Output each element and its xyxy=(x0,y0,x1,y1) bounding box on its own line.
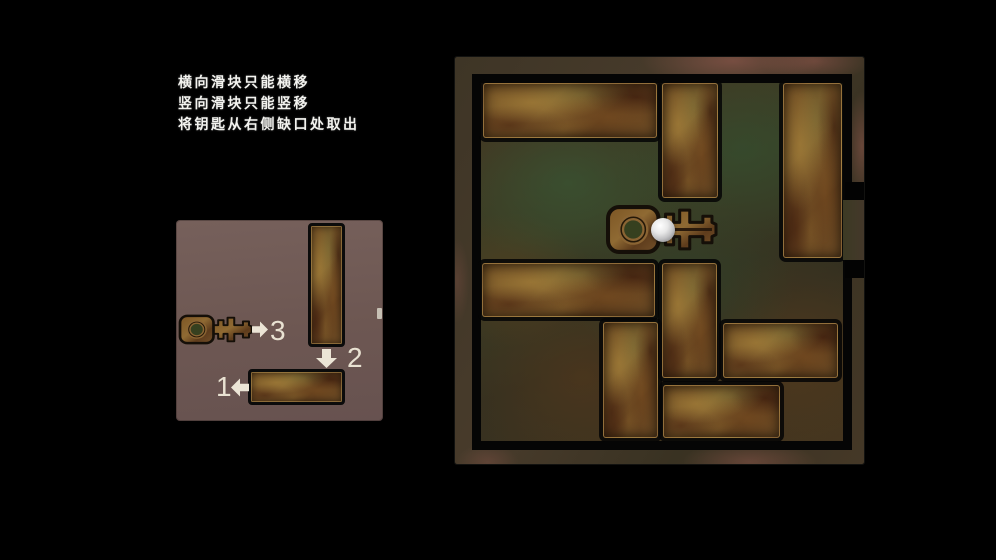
board-floor xyxy=(472,74,852,450)
step-1-label: 1 xyxy=(216,373,232,401)
cursor-ball xyxy=(651,218,675,242)
step-2-label: 2 xyxy=(347,344,363,372)
game-screen: 横向滑块只能横移 竖向滑块只能竖移 将钥匙从右侧缺口处取出 1 2 xyxy=(0,0,996,560)
step-2-arrow-down-icon xyxy=(316,349,337,368)
step-3-arrow-right-icon xyxy=(252,321,268,338)
puzzle-block-v3-right[interactable] xyxy=(783,83,842,258)
solution-horizontal-block xyxy=(248,369,345,405)
step-3-label: 3 xyxy=(270,317,286,345)
puzzle-block-h3-mid-left[interactable] xyxy=(482,263,655,317)
exit-notch-tab-bottom xyxy=(845,260,864,278)
key-icon xyxy=(178,314,253,345)
instructions: 横向滑块只能横移 竖向滑块只能竖移 将钥匙从右侧缺口处取出 xyxy=(178,73,360,136)
solution-panel: 1 2 3 xyxy=(176,220,383,421)
solution-exit-notch-mark xyxy=(377,308,382,319)
exit-notch-tab-top xyxy=(845,182,864,200)
puzzle-block-v2-bottom[interactable] xyxy=(603,322,658,438)
puzzle-board xyxy=(455,57,864,464)
instruction-line-1: 横向滑块只能横移 xyxy=(178,73,360,94)
puzzle-block-h3-top-left[interactable] xyxy=(483,83,657,138)
puzzle-block-h2-bottom[interactable] xyxy=(663,385,780,438)
instruction-line-3: 将钥匙从右侧缺口处取出 xyxy=(178,115,360,136)
exit-notch-channel xyxy=(843,200,864,260)
puzzle-block-h2-right[interactable] xyxy=(723,323,838,378)
solution-vertical-block xyxy=(308,223,345,347)
puzzle-block-v2-mid[interactable] xyxy=(662,263,717,378)
step-1-arrow-left-icon xyxy=(231,378,249,397)
puzzle-block-v2-top-mid[interactable] xyxy=(662,83,718,198)
instruction-line-2: 竖向滑块只能竖移 xyxy=(178,94,360,115)
